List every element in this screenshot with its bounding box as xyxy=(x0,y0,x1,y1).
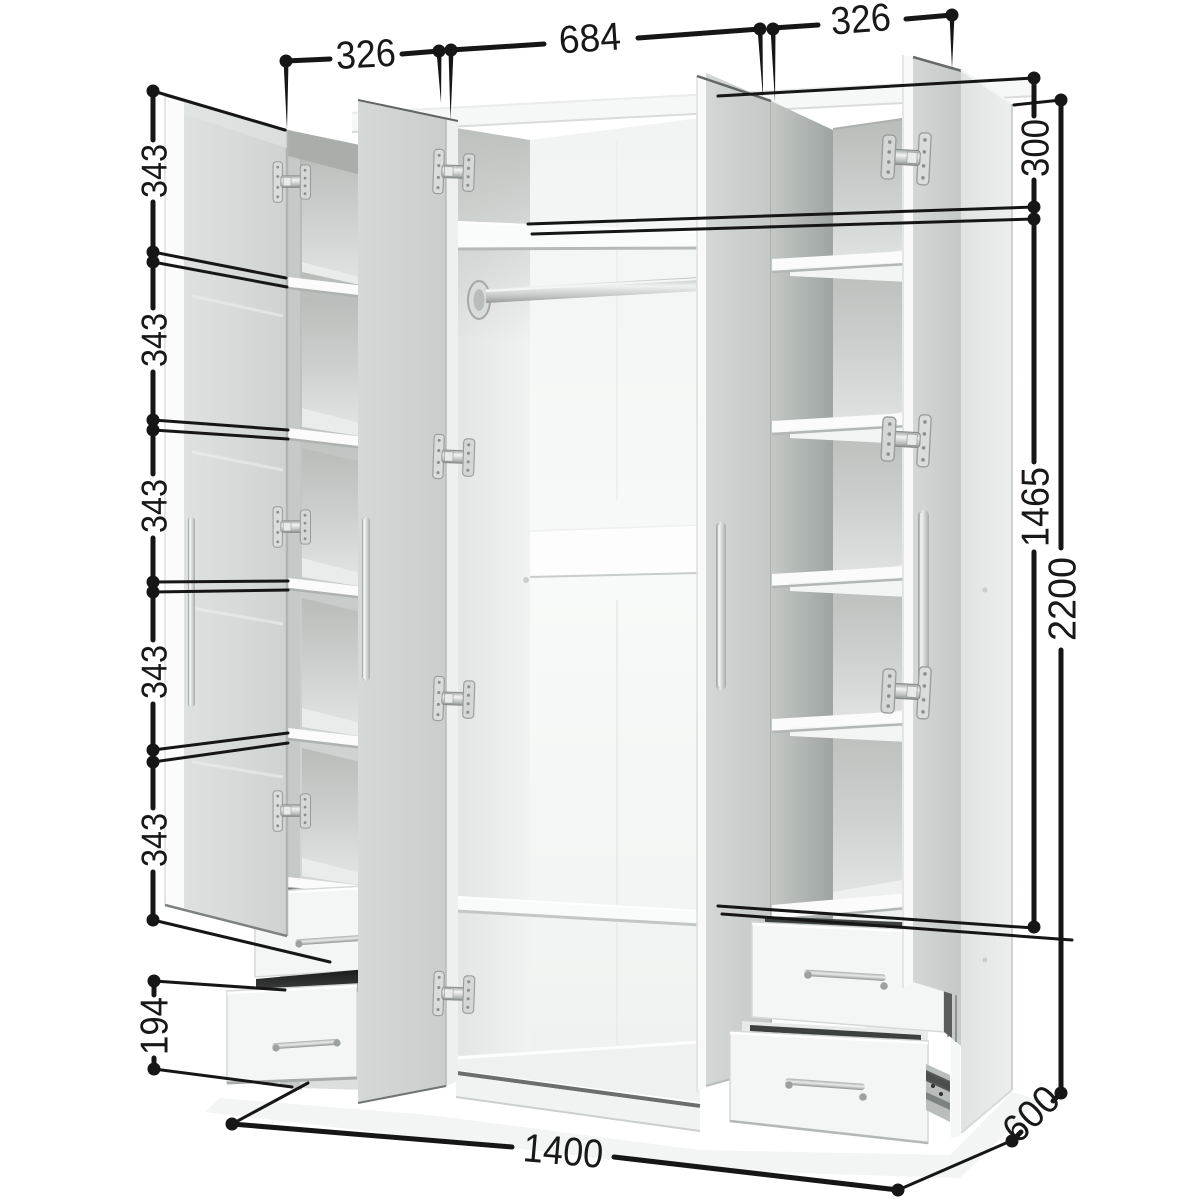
svg-text:326: 326 xyxy=(829,0,892,44)
svg-text:326: 326 xyxy=(335,32,397,78)
svg-text:1465: 1465 xyxy=(1014,467,1057,547)
svg-text:2200: 2200 xyxy=(1041,557,1084,641)
svg-text:684: 684 xyxy=(557,15,622,62)
svg-text:343: 343 xyxy=(134,479,175,533)
svg-text:343: 343 xyxy=(134,313,175,367)
svg-text:343: 343 xyxy=(134,813,175,867)
svg-text:1400: 1400 xyxy=(521,1126,605,1177)
svg-text:343: 343 xyxy=(134,144,175,198)
svg-text:300: 300 xyxy=(1014,119,1057,177)
svg-text:343: 343 xyxy=(134,645,175,699)
svg-text:194: 194 xyxy=(133,997,176,1055)
